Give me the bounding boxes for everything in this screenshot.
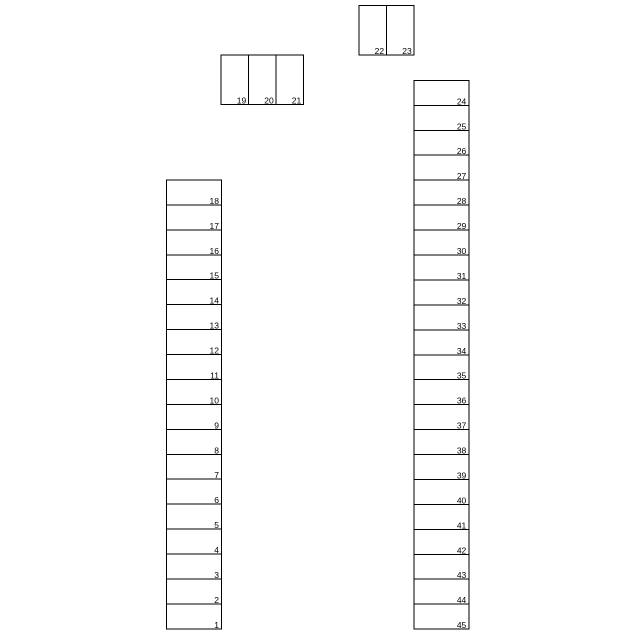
- svg-text:35: 35: [457, 371, 467, 381]
- svg-text:39: 39: [457, 470, 467, 480]
- svg-text:21: 21: [292, 96, 302, 106]
- svg-text:38: 38: [457, 446, 467, 456]
- svg-text:40: 40: [457, 495, 467, 505]
- svg-text:37: 37: [457, 421, 467, 431]
- svg-text:32: 32: [457, 296, 467, 306]
- svg-text:20: 20: [264, 96, 274, 106]
- svg-text:29: 29: [457, 221, 467, 231]
- svg-text:33: 33: [457, 321, 467, 331]
- svg-text:25: 25: [457, 121, 467, 131]
- svg-text:45: 45: [457, 620, 467, 630]
- svg-text:6: 6: [214, 495, 219, 505]
- svg-text:4: 4: [214, 545, 219, 555]
- svg-text:2: 2: [214, 595, 219, 605]
- svg-text:26: 26: [457, 146, 467, 156]
- svg-text:23: 23: [402, 46, 412, 56]
- svg-text:28: 28: [457, 196, 467, 206]
- svg-text:24: 24: [457, 96, 467, 106]
- svg-text:16: 16: [210, 246, 220, 256]
- svg-text:22: 22: [375, 46, 385, 56]
- svg-text:5: 5: [214, 520, 219, 530]
- svg-text:1: 1: [214, 620, 219, 630]
- svg-text:19: 19: [237, 96, 247, 106]
- svg-text:34: 34: [457, 346, 467, 356]
- svg-text:27: 27: [457, 171, 467, 181]
- svg-text:3: 3: [214, 570, 219, 580]
- svg-text:36: 36: [457, 396, 467, 406]
- svg-text:31: 31: [457, 271, 467, 281]
